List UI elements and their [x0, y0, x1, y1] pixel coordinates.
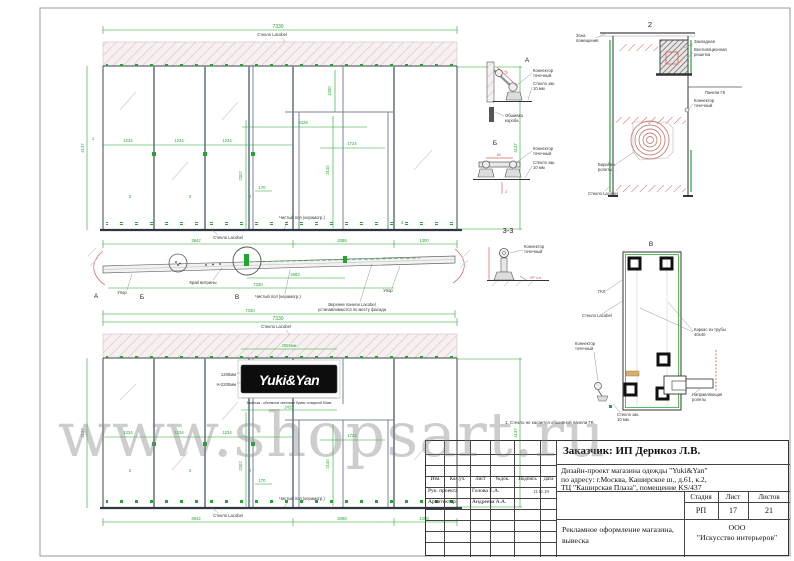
sheets-total: 21 [748, 506, 790, 515]
label-edge: Край витрины [189, 280, 216, 285]
title-block: Изм. Кол.уч. Лист №док. Подпись Дата Рук… [425, 440, 789, 556]
label: ролеты [598, 167, 612, 172]
dim-label: 2302 [238, 461, 243, 471]
marker-b: Б [140, 294, 144, 301]
label: точечный [533, 73, 552, 78]
note: устанавливаются по месту фасада [318, 307, 387, 312]
floor-level-label: УР ч.п. [530, 276, 542, 280]
label: решетка [694, 52, 711, 57]
dim-label: 4137 [513, 143, 518, 153]
dim-label: 82 [497, 153, 501, 157]
col-header: №док. [491, 477, 514, 482]
label: ГКЛ [598, 289, 606, 294]
label: Стекло Lacobel [582, 313, 612, 318]
section-3-3: 3-3 Коннектор точечный УР ч.п. [487, 226, 549, 286]
roller-coil [631, 121, 669, 159]
subject-line: вывеска [562, 536, 589, 545]
glass-label: Стекло Lacobel [213, 513, 243, 518]
subject-line: Рекламное оформление магазина, [562, 525, 674, 534]
sheet-number: 17 [718, 506, 748, 515]
glass-label: Стекло Lacobel [213, 235, 243, 240]
dim-label: 2088 [337, 516, 347, 521]
signature-date: 11.11.19 [533, 489, 549, 494]
dim-label: 2429 [298, 120, 308, 125]
section-2: 2 Зона помещения Панели ГК Закладная Вен… [576, 20, 742, 196]
dim-label: 1724 [347, 141, 357, 146]
stage-value: РП [684, 506, 718, 515]
dim-label: 7330 [253, 282, 263, 287]
dim-label: 1234 [174, 138, 184, 143]
mark: 2 [129, 468, 132, 473]
glass-label: Стекло Lacobel [261, 324, 291, 329]
sheet-header: Лист [718, 493, 748, 501]
col-header: Лист [471, 477, 490, 482]
label: точечный [524, 249, 543, 254]
company-name: "Искусство интерьеров" [684, 533, 790, 542]
detail-title: В [649, 241, 653, 248]
mark: 2 [189, 194, 192, 199]
sign-height-label: 1200мм [221, 372, 236, 377]
dim-label: 1234 [222, 430, 232, 435]
label: точечный [533, 151, 552, 156]
stage-header: Стадия [684, 493, 718, 501]
elevation-top: 7330 Стекло Lacobel 1234 1234 1234 2429 … [80, 24, 522, 248]
dim-label: 3942 [191, 516, 201, 521]
section-title: 2 [648, 20, 652, 29]
dim-label: 1000 [327, 86, 332, 96]
project-line: ТЦ "Каширская Плаза", помещение KS/437 [561, 483, 702, 492]
drawing-sheet: 7330 Стекло Lacobel 1234 1234 1234 2429 … [0, 0, 794, 561]
dim-label: 2083 [290, 272, 300, 277]
dim-label: 73 [503, 69, 509, 75]
dim-label: 1234 [123, 138, 133, 143]
sign-text: Yuki&Yan [259, 372, 319, 388]
label: Панели ГК [705, 90, 726, 95]
marker-v: В [235, 294, 239, 301]
detail-title: Б [493, 140, 497, 147]
company-name: ООО [684, 523, 790, 532]
signature-name: Андреева А.А. [472, 499, 506, 505]
plan-section: 2083 7330 7330 А Б В Упор Край витрины Ч… [88, 247, 470, 318]
sign-mount-label: Н-2200мм [217, 382, 237, 387]
col-header: Дата [541, 477, 556, 482]
label: короба [505, 118, 519, 123]
detail-v: В ГКЛ Стекло Lacobel Каркас из трубы 40х… [505, 241, 726, 425]
label: ролеты [692, 397, 706, 402]
dim-label: 2140 [325, 459, 330, 469]
dim-label: 4137 [80, 143, 85, 153]
dim-label: 4137 [80, 428, 85, 438]
customer: Заказчик: ИП Дерикоз Л.В. [563, 445, 700, 457]
wall-hatch [103, 334, 457, 358]
signature-role: Рук. проекта [428, 488, 458, 494]
dim-label: 2140 [325, 165, 330, 175]
col-header: Изм. [427, 477, 444, 482]
dim-label: 2055мм [281, 343, 296, 348]
floor-label: Чистый пол (керамогр.) [279, 496, 325, 501]
sheets-header: Листов [748, 493, 790, 501]
dim-label: 2302 [238, 171, 243, 181]
label: точечный [575, 346, 594, 351]
floor-label: Чистый пол (керамогр.) [279, 215, 325, 220]
label: 10 мм [533, 165, 545, 170]
marker-a: А [94, 293, 99, 300]
general-note: 1. Стекло не касается обшивной панели ГК… [505, 420, 595, 425]
label-upor: Упор [117, 290, 127, 295]
signature-role: Архитектор [428, 499, 456, 505]
label: 10 мм [533, 86, 545, 91]
col-header: Подпись [515, 477, 540, 482]
label: 40х40 [694, 332, 706, 337]
label-upor: Упор [383, 288, 393, 293]
wall-hatch [103, 42, 457, 66]
mark: 2 [249, 468, 252, 473]
dim-label: 7330 [272, 24, 283, 30]
mark: 2 [249, 194, 252, 199]
mark: 1 [92, 136, 95, 141]
dim-label: 170 [259, 185, 267, 190]
dim-label: 2088 [337, 238, 347, 243]
dim-label: 7330 [245, 308, 255, 313]
dim-label: 7330 [272, 316, 283, 322]
col-header: Кол.уч. [445, 477, 470, 482]
dim-label: 1300 [419, 238, 429, 243]
detail-title: А [525, 57, 530, 64]
dim-label: 2 [505, 190, 507, 194]
dim-label: 170 [259, 478, 267, 483]
dim-label: 1234 [174, 430, 184, 435]
label: точечный [694, 103, 713, 108]
section-title: 3-3 [503, 226, 514, 235]
signature-name: Голова Е.А. [472, 488, 499, 494]
label: Закладная [694, 39, 715, 44]
dim-label: 1724 [347, 433, 357, 438]
floor-label: Чистый пол (керамогр.) [255, 294, 301, 299]
dim-label: 2429 [284, 405, 294, 410]
glass-label: Стекло Lacobel [257, 32, 287, 37]
label: 10 мм [617, 417, 629, 422]
dim-label: 4137 [513, 428, 518, 438]
mark: 2 [189, 468, 192, 473]
dim-label: 1234 [123, 430, 133, 435]
dim-label: 1234 [222, 138, 232, 143]
dim-label: 3942 [191, 238, 201, 243]
label: помещения [576, 38, 598, 43]
mark: 2 [129, 194, 132, 199]
